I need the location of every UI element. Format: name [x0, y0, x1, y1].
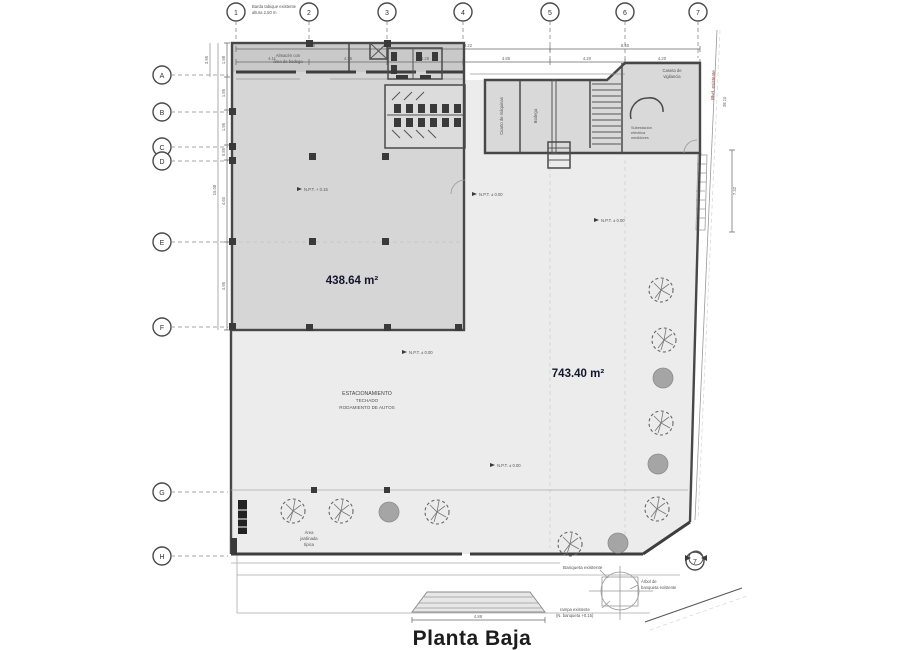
grid-label: 2 — [307, 10, 311, 17]
street-diagonal — [645, 588, 742, 622]
grid-leaders-left — [171, 75, 228, 556]
dim-text: 4.20 — [583, 56, 592, 61]
dim-text: 1.85 — [221, 88, 226, 97]
access-ramp: 4.88 — [412, 592, 545, 623]
dim-text: 4.95 — [221, 281, 226, 290]
npt-label: N.P.T. ± 0.00 — [479, 192, 503, 197]
ladder-body — [238, 500, 247, 534]
dim-text: 38.10 — [722, 96, 728, 107]
shrub-icon — [608, 533, 628, 553]
grid-label: A — [160, 73, 165, 80]
dim-text: 4.60 — [221, 196, 226, 205]
grid-label: 1 — [234, 10, 238, 17]
leader-lines — [600, 570, 638, 608]
tree-note: Árbol de — [641, 579, 657, 584]
fence-note: altura 2.50 m — [252, 10, 277, 15]
floor-plan-page: 1 2 3 4 5 6 7 A B C D E F G H — [0, 0, 900, 650]
dim-text: 7.32 — [732, 186, 737, 195]
site-boundary-right-2 — [698, 30, 720, 520]
grid-label: 6 — [623, 10, 627, 17]
dim-text: 4.20 — [658, 56, 667, 61]
substation-label: eléctrica — [631, 131, 646, 135]
dim-text: 16.08 — [212, 184, 217, 195]
fence-note: Barda tabique existente — [252, 4, 297, 9]
npt-label: N.P.T. ± 0.00 — [409, 350, 433, 355]
room-label: Bodega — [533, 108, 538, 123]
passage-fill — [465, 80, 485, 153]
storage-note: Almacén con — [276, 53, 301, 58]
grid-label: H — [159, 554, 164, 561]
wall-block — [231, 538, 237, 555]
substation-label: Subestación — [631, 126, 652, 130]
page-title: Planta Baja — [413, 627, 532, 650]
grid-label: E — [160, 240, 165, 247]
yard-area-label: 743.40 m² — [552, 368, 605, 380]
dim-text: 1.98 — [221, 55, 226, 64]
grid-label: F — [160, 325, 164, 332]
ramp-note: (N. banqueta +0.15) — [556, 613, 594, 618]
grid-label: 7 — [696, 10, 700, 17]
dim-text: 9.22 — [464, 43, 473, 48]
grid-label: D — [159, 159, 164, 166]
shrub-icon — [379, 502, 399, 522]
substation-label: medidores — [631, 136, 649, 140]
street-label: Blvd. existente — [710, 70, 716, 100]
parking-label: TECHADO — [356, 398, 379, 403]
dim-text: 4.85 — [502, 56, 511, 61]
guard-room-label: Caseta de — [662, 68, 682, 73]
grid-label: G — [159, 490, 164, 497]
npt-label: N.P.T. + 0.15 — [304, 187, 328, 192]
sidewalk-label: Banqueta existente — [563, 565, 603, 570]
npt-label: N.P.T. ± 0.00 — [497, 463, 521, 468]
garden-label: jardinada — [299, 536, 318, 541]
guard-room-label: vigilancia — [663, 74, 681, 79]
garden-label: típica — [304, 542, 315, 547]
hall-area-label: 438.64 m² — [326, 275, 379, 287]
parking-label: ESTACIONAMIENTO — [342, 391, 392, 397]
dim-text: 8.40 — [621, 43, 630, 48]
street-diagonal-2 — [650, 596, 747, 630]
storage-note: área de bodega — [273, 59, 303, 64]
room-label: Cuarto de máquinas — [499, 97, 504, 135]
ramp-note: rampa existente — [560, 607, 590, 612]
dim-text: 4.88 — [474, 614, 483, 619]
npt-label: N.P.T. ± 0.00 — [601, 218, 625, 223]
grid-label: 3 — [385, 10, 389, 17]
garden-label: Área — [305, 530, 315, 535]
grid-label: B — [160, 110, 165, 117]
tree-note: banqueta existente — [641, 585, 677, 590]
dim-text: 1.95 — [221, 122, 226, 131]
floor-plan-drawing: 1 2 3 4 5 6 7 A B C D E F G H — [0, 0, 900, 650]
shrub-icon — [653, 368, 673, 388]
parking-label: RODAMIENTO DE AUTOS — [339, 405, 394, 410]
shrub-icon — [648, 454, 668, 474]
ramp-shape — [412, 592, 545, 612]
street-tree-detail — [589, 566, 653, 620]
dim-text: 3.95 — [204, 55, 209, 64]
grid-label: 4 — [461, 10, 465, 17]
dim-text: 0.85 — [221, 147, 226, 156]
dim-text: 4.28 — [421, 56, 430, 61]
grid-label: C — [159, 145, 164, 152]
grid-label: 5 — [548, 10, 552, 17]
